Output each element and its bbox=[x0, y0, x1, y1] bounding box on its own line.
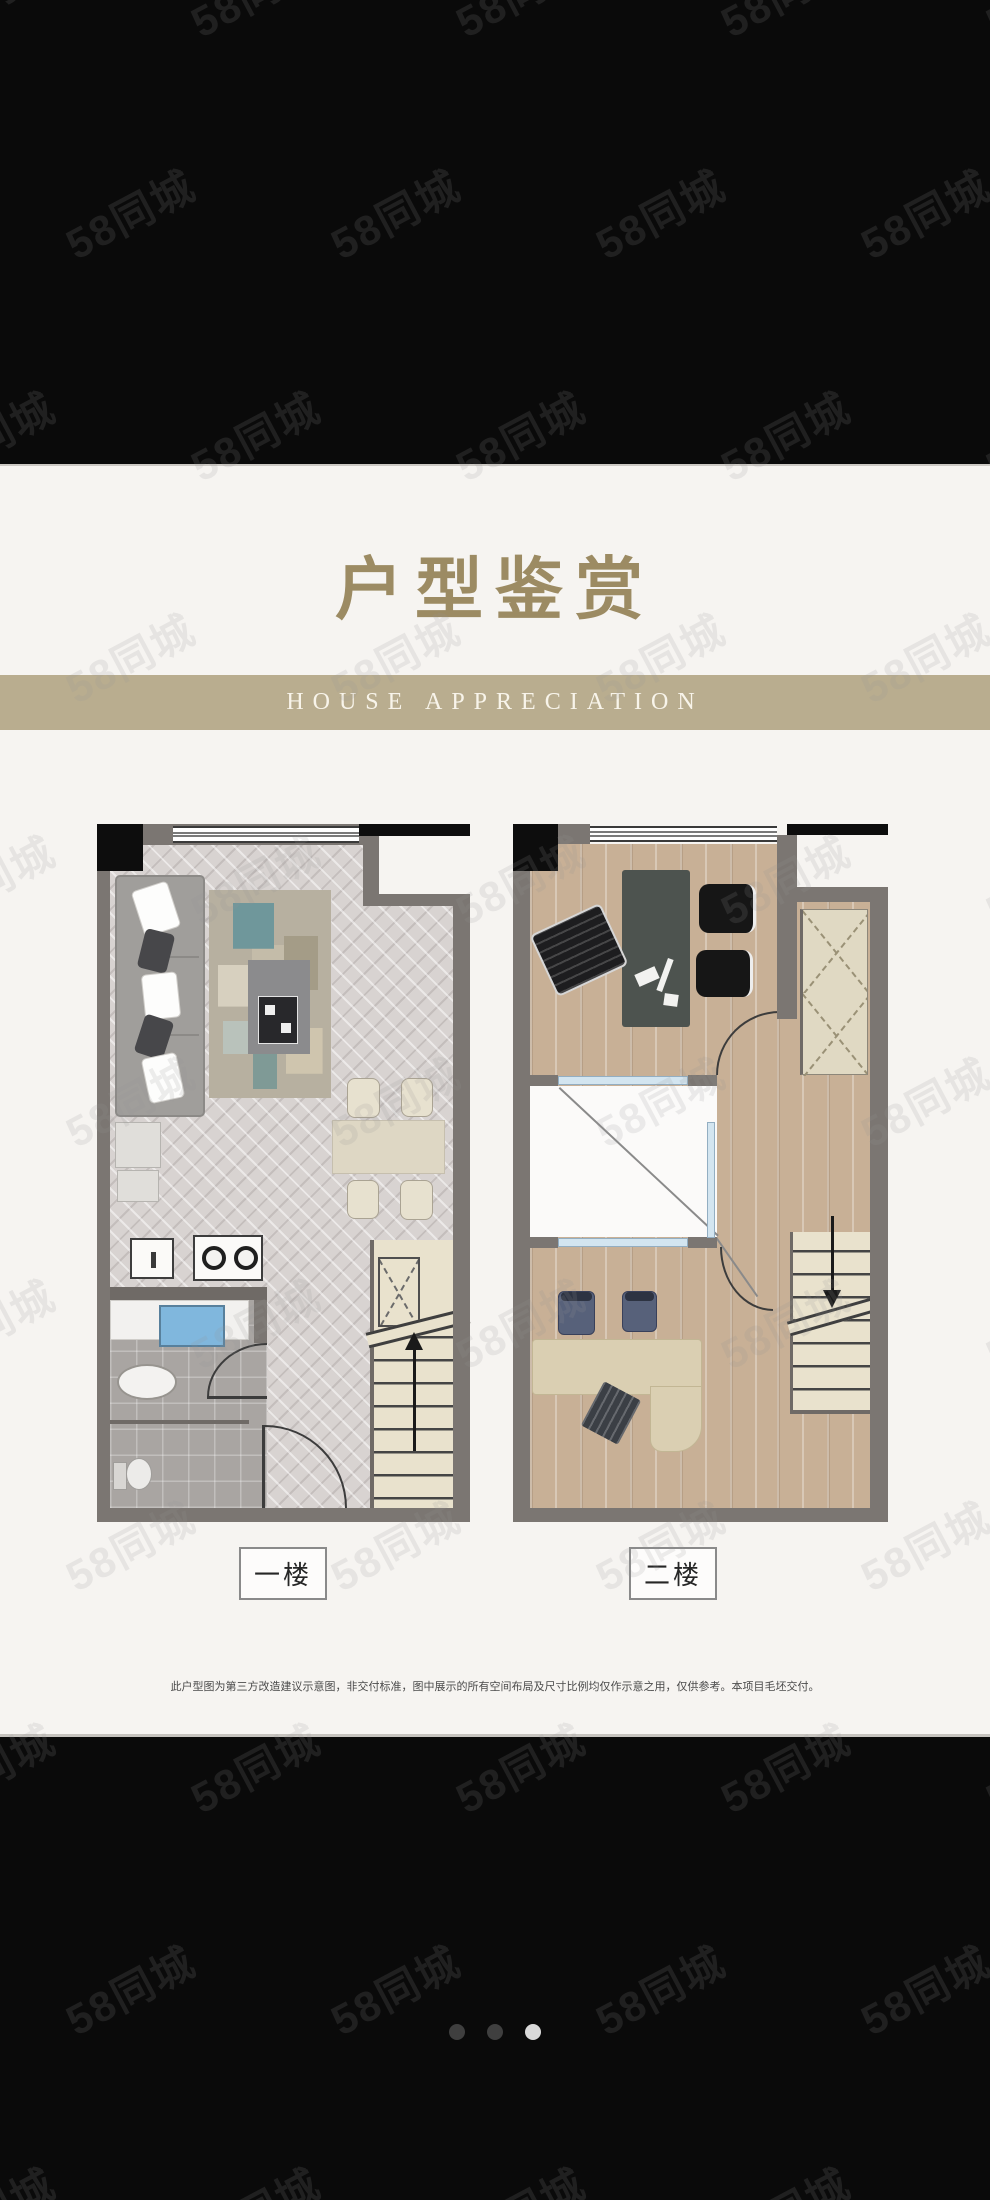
watermark-text: 58同城 bbox=[584, 153, 735, 272]
listing-photo-page: 58同城58同城58同城58同城58同城58同城58同城58同城58同城58同城… bbox=[0, 0, 990, 2200]
watermark-text: 58同城 bbox=[974, 819, 990, 938]
watermark-text: 58同城 bbox=[709, 375, 860, 494]
watermark-text: 58同城 bbox=[54, 1485, 205, 1604]
watermark-text: 58同城 bbox=[974, 1707, 990, 1826]
watermark-text: 58同城 bbox=[54, 1929, 205, 2048]
watermark-text: 58同城 bbox=[179, 375, 330, 494]
watermark-text: 58同城 bbox=[319, 1485, 470, 1604]
watermark-text: 58同城 bbox=[54, 1041, 205, 1160]
watermark-text: 58同城 bbox=[54, 597, 205, 716]
watermark-text: 58同城 bbox=[319, 153, 470, 272]
watermark-text: 58同城 bbox=[444, 1707, 595, 1826]
watermark-text: 58同城 bbox=[849, 1929, 990, 2048]
watermark-text: 58同城 bbox=[444, 375, 595, 494]
watermark-text: 58同城 bbox=[584, 597, 735, 716]
watermark-text: 58同城 bbox=[319, 1041, 470, 1160]
watermark-layer: 58同城58同城58同城58同城58同城58同城58同城58同城58同城58同城… bbox=[0, 0, 990, 2200]
watermark-text: 58同城 bbox=[0, 2151, 65, 2200]
watermark-text: 58同城 bbox=[584, 1485, 735, 1604]
watermark-text: 58同城 bbox=[54, 153, 205, 272]
watermark-text: 58同城 bbox=[849, 1485, 990, 1604]
watermark-text: 58同城 bbox=[709, 819, 860, 938]
watermark-text: 58同城 bbox=[179, 1263, 330, 1382]
watermark-text: 58同城 bbox=[444, 0, 595, 50]
watermark-text: 58同城 bbox=[974, 1263, 990, 1382]
watermark-text: 58同城 bbox=[0, 375, 65, 494]
watermark-text: 58同城 bbox=[444, 819, 595, 938]
watermark-text: 58同城 bbox=[849, 153, 990, 272]
watermark-text: 58同城 bbox=[179, 819, 330, 938]
watermark-text: 58同城 bbox=[709, 0, 860, 50]
watermark-text: 58同城 bbox=[179, 1707, 330, 1826]
watermark-text: 58同城 bbox=[709, 2151, 860, 2200]
watermark-text: 58同城 bbox=[0, 1707, 65, 1826]
watermark-text: 58同城 bbox=[974, 2151, 990, 2200]
watermark-text: 58同城 bbox=[179, 0, 330, 50]
watermark-text: 58同城 bbox=[584, 1041, 735, 1160]
watermark-text: 58同城 bbox=[0, 1263, 65, 1382]
watermark-text: 58同城 bbox=[849, 1041, 990, 1160]
watermark-text: 58同城 bbox=[0, 819, 65, 938]
watermark-text: 58同城 bbox=[0, 0, 65, 50]
watermark-text: 58同城 bbox=[444, 1263, 595, 1382]
watermark-text: 58同城 bbox=[974, 375, 990, 494]
watermark-text: 58同城 bbox=[709, 1707, 860, 1826]
watermark-text: 58同城 bbox=[444, 2151, 595, 2200]
watermark-text: 58同城 bbox=[584, 1929, 735, 2048]
watermark-text: 58同城 bbox=[319, 1929, 470, 2048]
watermark-text: 58同城 bbox=[179, 2151, 330, 2200]
watermark-text: 58同城 bbox=[849, 597, 990, 716]
watermark-text: 58同城 bbox=[974, 0, 990, 50]
watermark-text: 58同城 bbox=[709, 1263, 860, 1382]
watermark-text: 58同城 bbox=[319, 597, 470, 716]
